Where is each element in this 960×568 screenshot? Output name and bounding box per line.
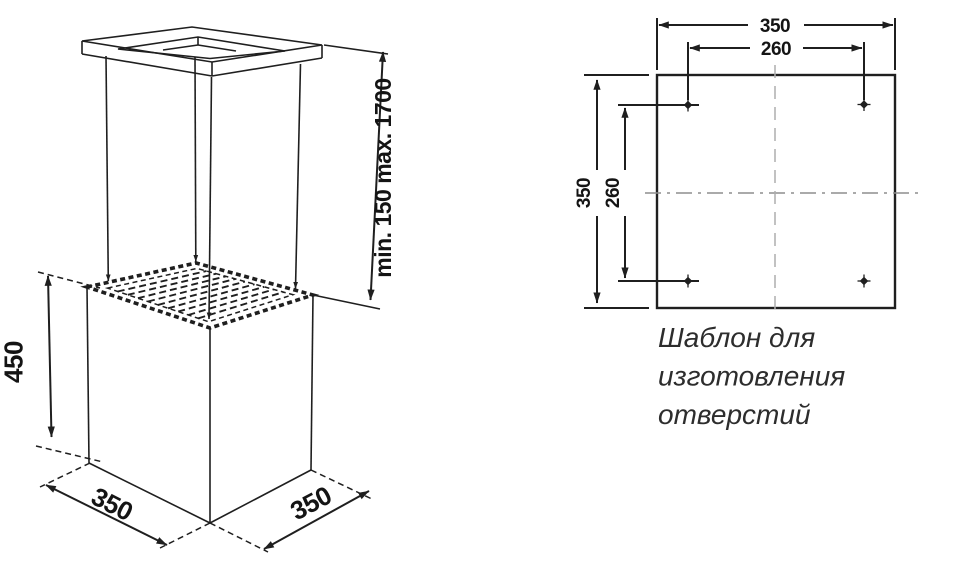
base-width-dimension-label: 350 [87,481,138,527]
hood-body [87,263,313,523]
support-rod [296,64,301,289]
chimney-dimension-label: min. 150 max. 1700 [370,78,396,277]
hood-isometric-view: 450 min. 150 max. 1700 350 350 [0,27,396,552]
dimension-depth-350: 350 [210,470,374,552]
drill-hole-mark [682,99,695,112]
base-depth-dimension-label: 350 [285,480,336,526]
template-width-label: 350 [760,16,790,37]
dimension-template-height-350: 350 [574,80,597,303]
drill-template-outline [657,75,895,308]
grease-filter-grill [87,263,313,328]
dimension-template-pitch-260-side: 260 [603,108,625,278]
support-rod [209,77,212,319]
technical-drawing-canvas: 450 min. 150 max. 1700 350 350 [0,0,960,568]
drill-hole-mark [858,98,871,111]
drill-template-view: 350 260 350 260 [574,16,921,430]
height-dimension-label: 450 [0,341,29,383]
template-caption: Шаблон для изготовления отверстий [658,322,845,430]
template-hole-pitch-side-label: 260 [603,178,624,208]
dimension-width-350: 350 [40,463,210,548]
drill-hole-mark [858,275,871,288]
manual-diagram-page: 450 min. 150 max. 1700 350 350 [0,0,960,568]
template-hole-pitch-label: 260 [761,39,791,60]
dimension-chimney-height: min. 150 max. 1700 [313,45,396,309]
template-caption-line: изготовления [658,361,845,392]
template-height-label: 350 [574,178,595,208]
ceiling-mount-frame [82,27,322,76]
support-rod [195,57,196,262]
support-rod [106,56,108,281]
support-rods [106,56,301,319]
template-caption-line: отверстий [658,399,811,430]
template-caption-line: Шаблон для [658,322,815,353]
dimension-template-pitch-260-top: 260 [688,39,864,100]
drill-hole-mark [682,275,695,288]
